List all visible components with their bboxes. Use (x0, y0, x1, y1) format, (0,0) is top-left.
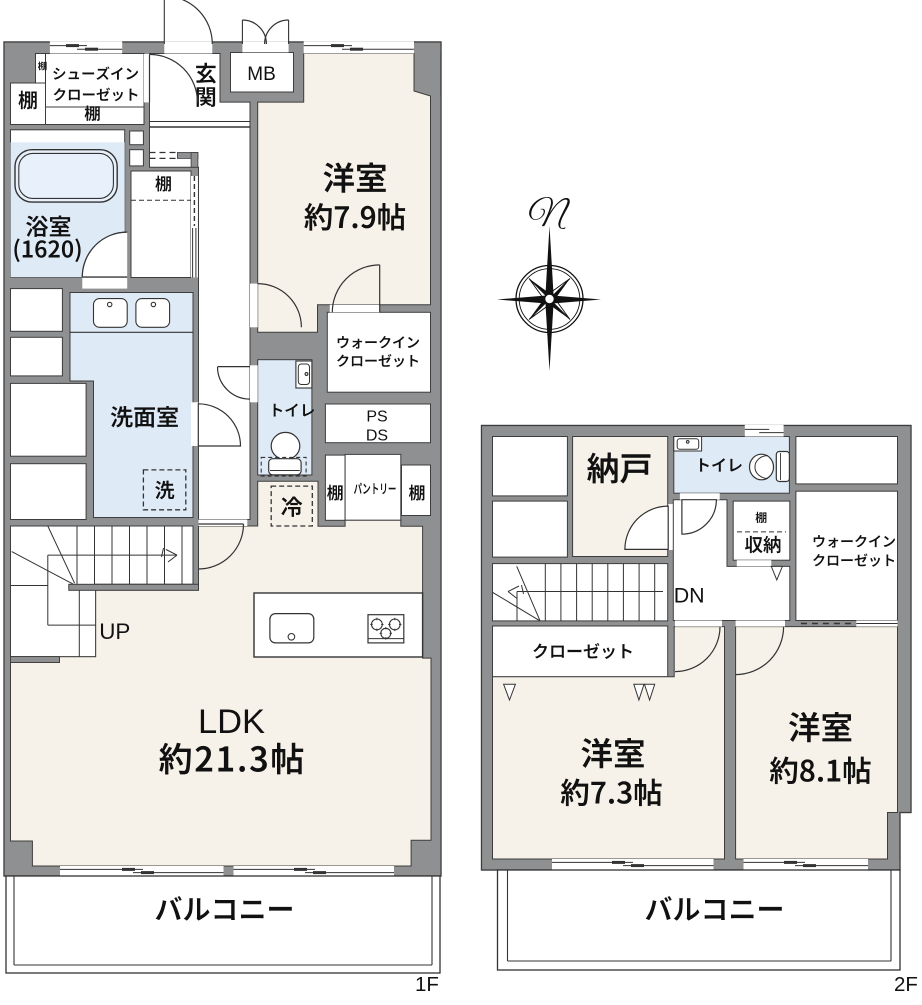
svg-text:PS: PS (366, 409, 387, 426)
svg-text:UP: UP (99, 619, 130, 644)
svg-text:DS: DS (366, 428, 388, 445)
svg-text:2F: 2F (894, 973, 918, 996)
svg-text:LDK: LDK (198, 703, 265, 741)
svg-text:1F: 1F (415, 973, 439, 996)
svg-text:DN: DN (674, 584, 705, 608)
svg-text:MB: MB (247, 64, 276, 85)
